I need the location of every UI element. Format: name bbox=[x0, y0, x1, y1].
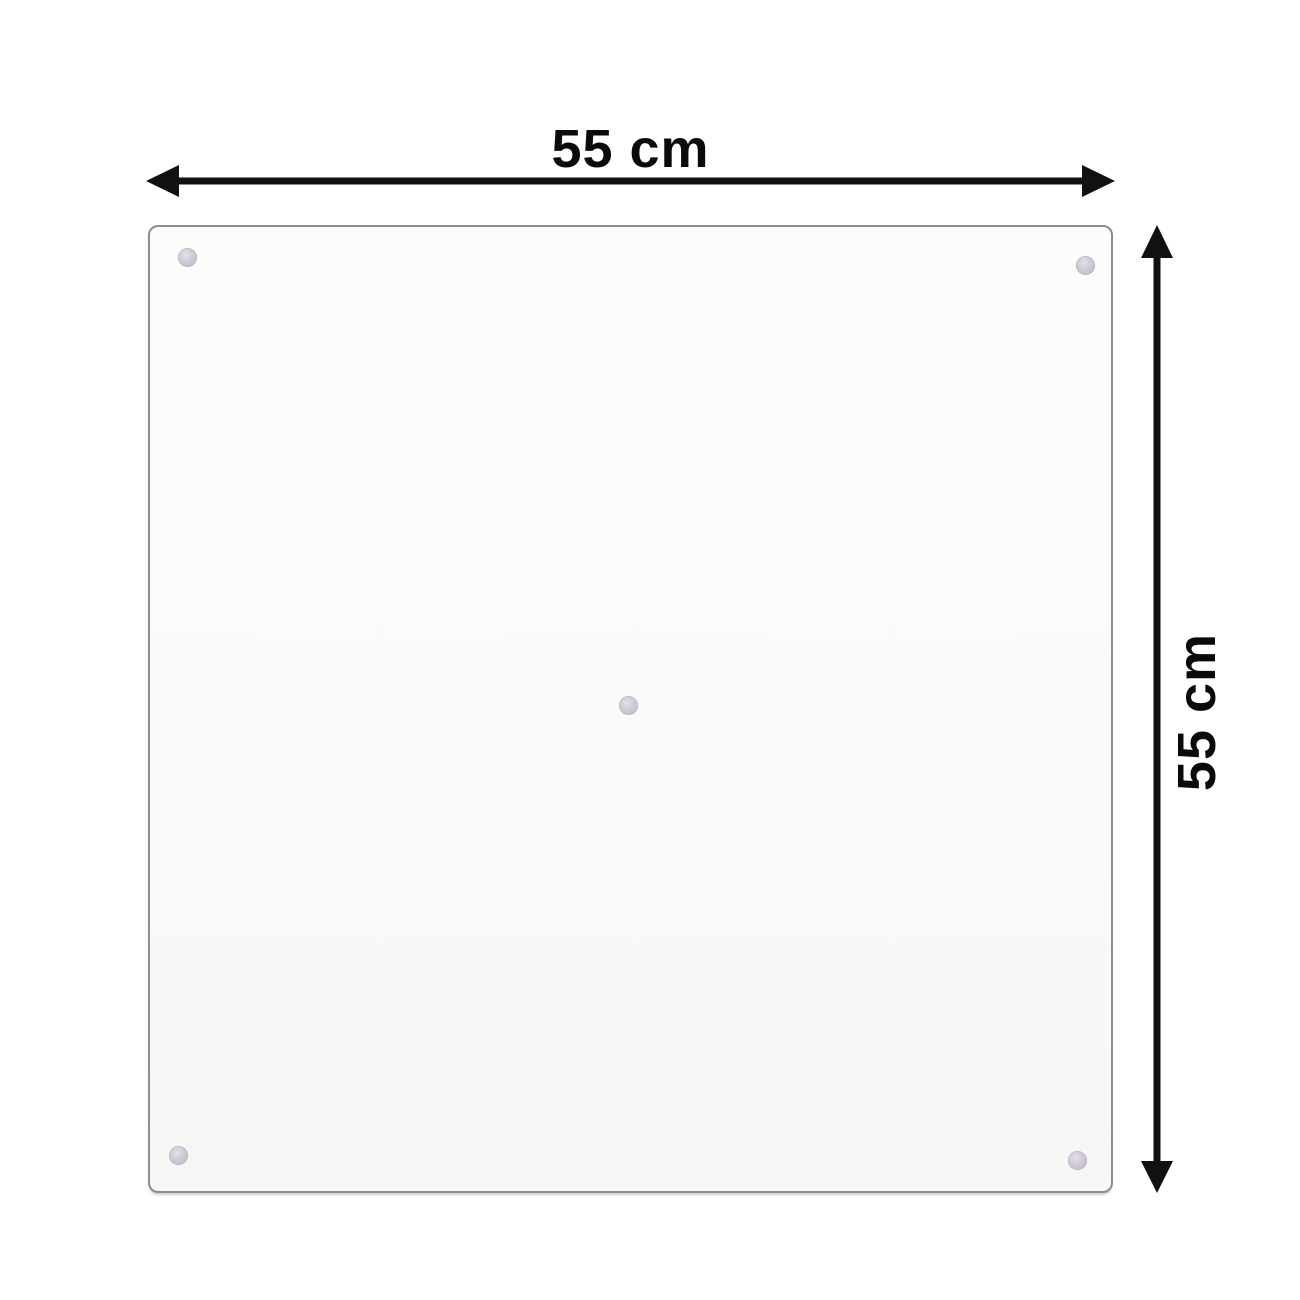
suction-cup-center bbox=[619, 696, 638, 715]
arrow-right-head-icon bbox=[1082, 165, 1115, 197]
arrow-left-head-icon bbox=[146, 165, 179, 197]
arrow-down-head-icon bbox=[1141, 1161, 1173, 1193]
suction-cup-top-right bbox=[1076, 256, 1095, 275]
horizontal-dimension-arrow-icon bbox=[146, 163, 1115, 199]
height-dimension-label: 55 cm bbox=[1170, 633, 1224, 791]
suction-cup-top-left bbox=[178, 248, 197, 267]
suction-cup-bottom-left bbox=[169, 1146, 188, 1165]
suction-cup-bottom-right bbox=[1068, 1151, 1087, 1170]
dimension-diagram: 55 cm 55 cm bbox=[0, 0, 1300, 1300]
arrow-up-head-icon bbox=[1141, 225, 1173, 258]
